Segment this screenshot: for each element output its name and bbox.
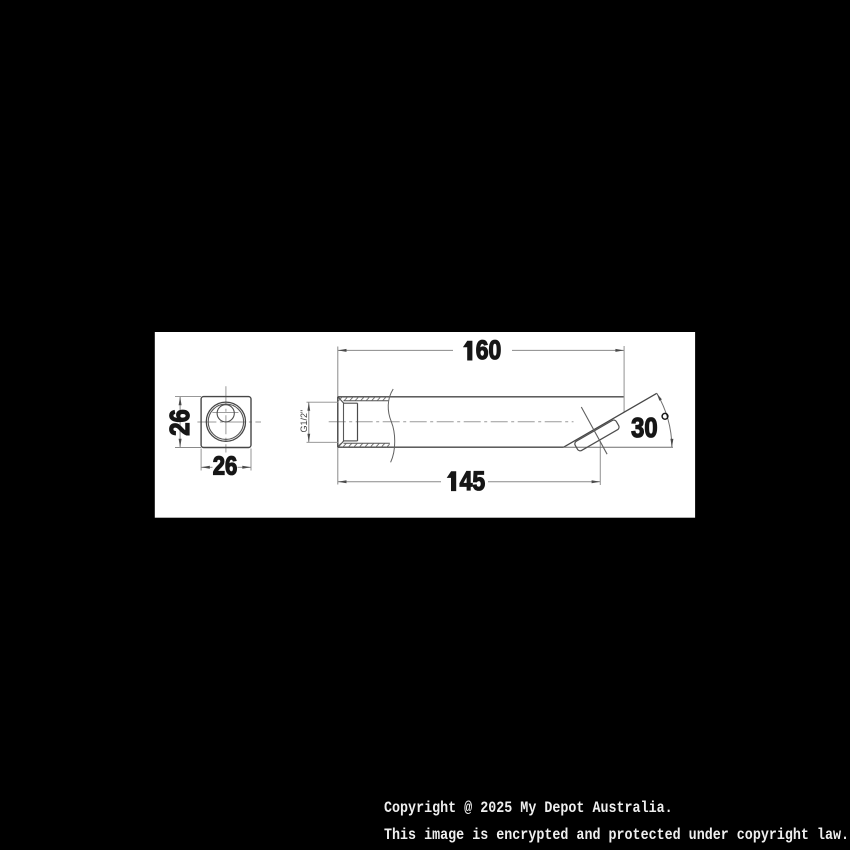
svg-text:26: 26 <box>163 409 195 435</box>
svg-text:26: 26 <box>213 452 238 481</box>
svg-text:30: 30 <box>631 411 657 443</box>
svg-text:45: 45 <box>460 466 486 496</box>
svg-text:60: 60 <box>476 336 502 366</box>
svg-text:G1/2": G1/2" <box>299 410 309 433</box>
